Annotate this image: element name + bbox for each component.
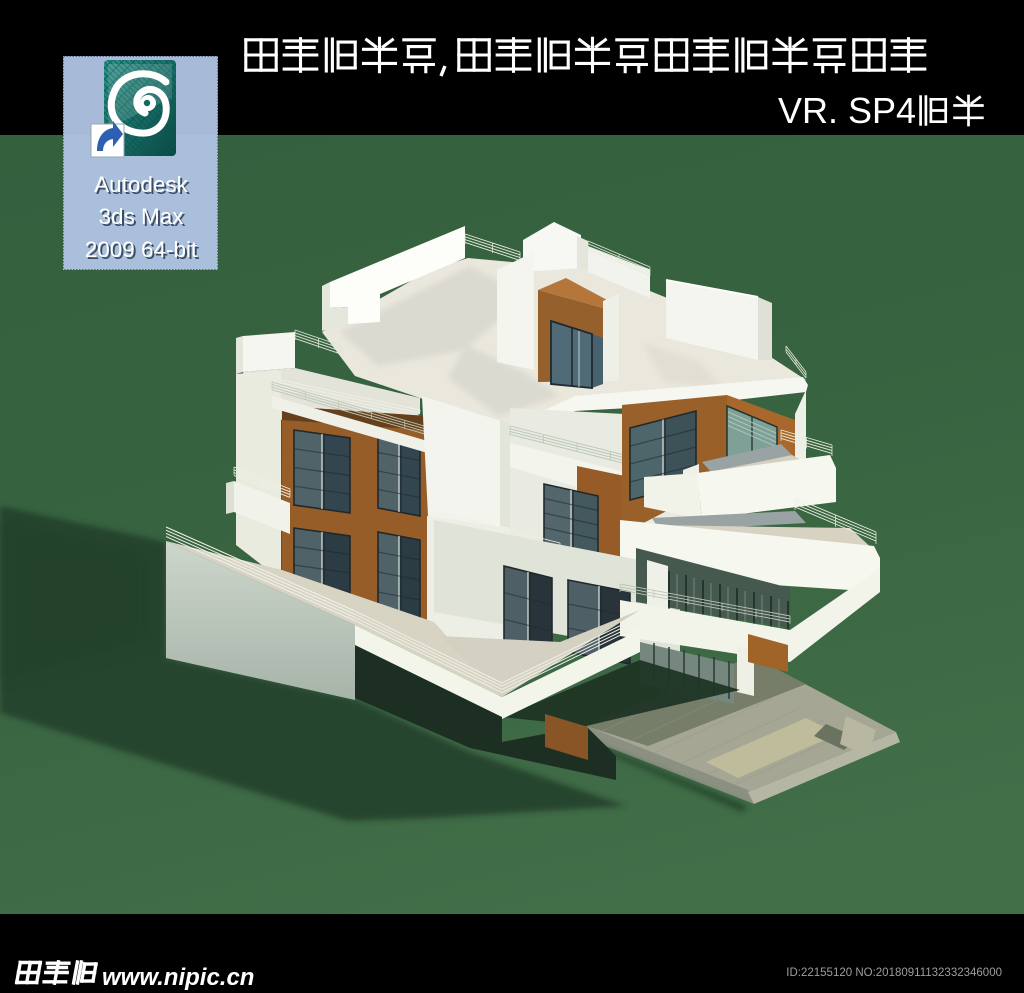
svg-text:VR. SP4: VR. SP4 xyxy=(778,90,916,131)
svg-text:2009 64-bit: 2009 64-bit xyxy=(85,237,198,262)
svg-text:www.nipic.cn: www.nipic.cn xyxy=(102,964,254,991)
svg-text:Autodesk: Autodesk xyxy=(94,172,189,197)
svg-text:ID:22155120 NO:201809111323323: ID:22155120 NO:20180911132332346000 xyxy=(786,967,1002,979)
svg-text:3ds Max: 3ds Max xyxy=(98,204,184,229)
